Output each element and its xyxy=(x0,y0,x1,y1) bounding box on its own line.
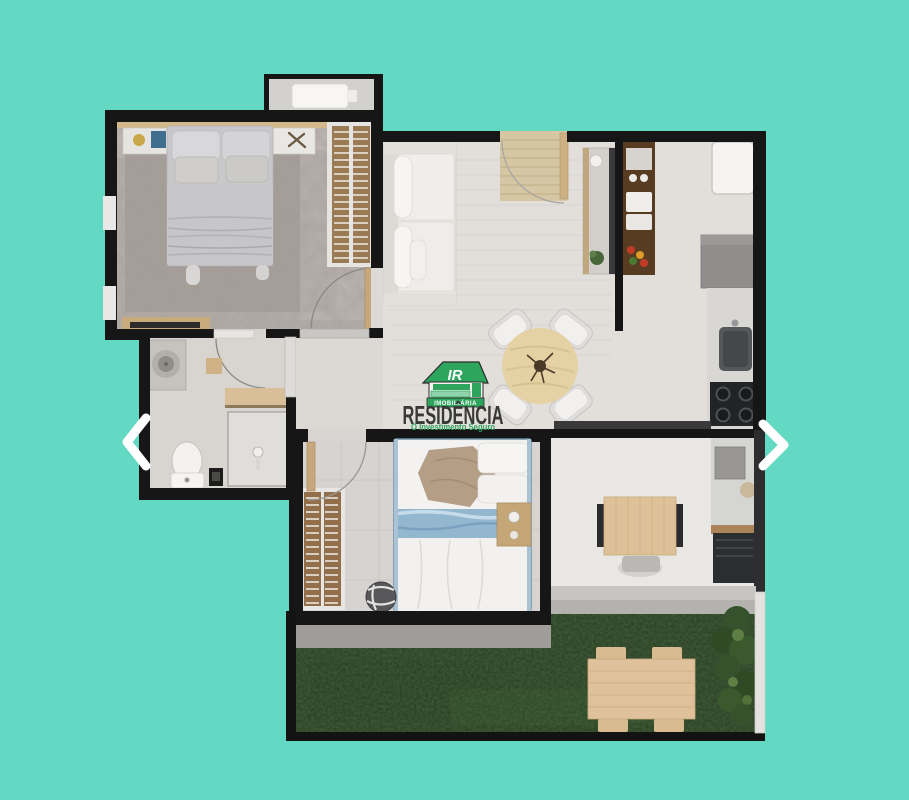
svg-text:O Investimento Seguro: O Investimento Seguro xyxy=(411,422,495,432)
svg-text:IR: IR xyxy=(448,367,463,384)
